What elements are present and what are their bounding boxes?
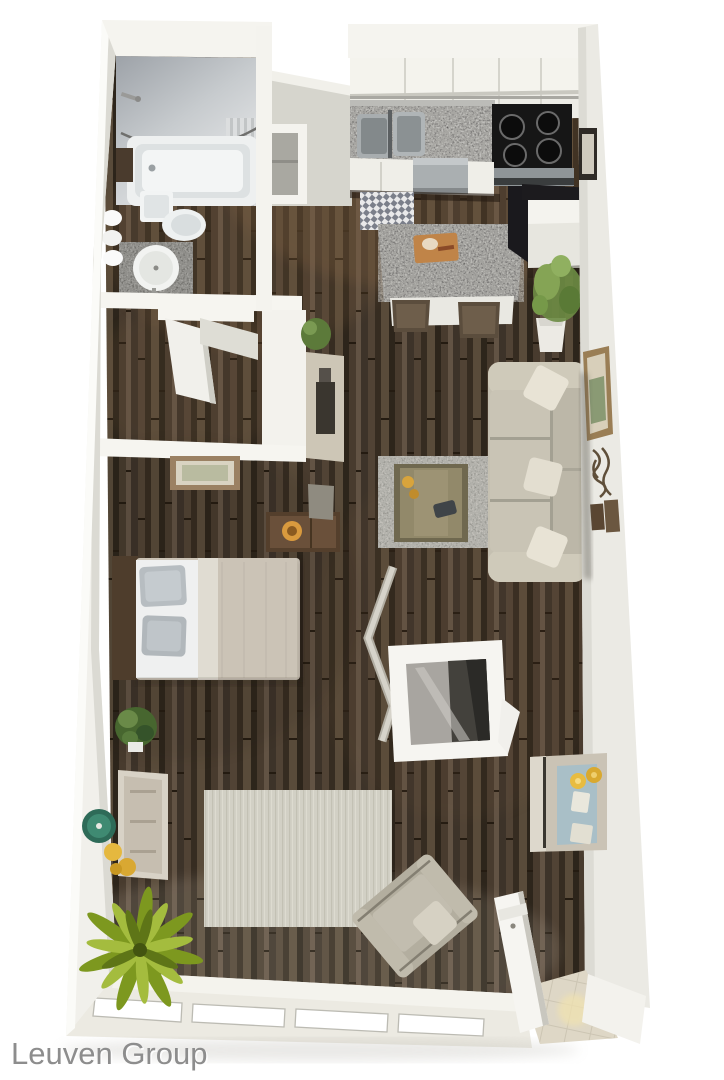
svg-text:Leuven Group: Leuven Group [11, 1036, 207, 1071]
